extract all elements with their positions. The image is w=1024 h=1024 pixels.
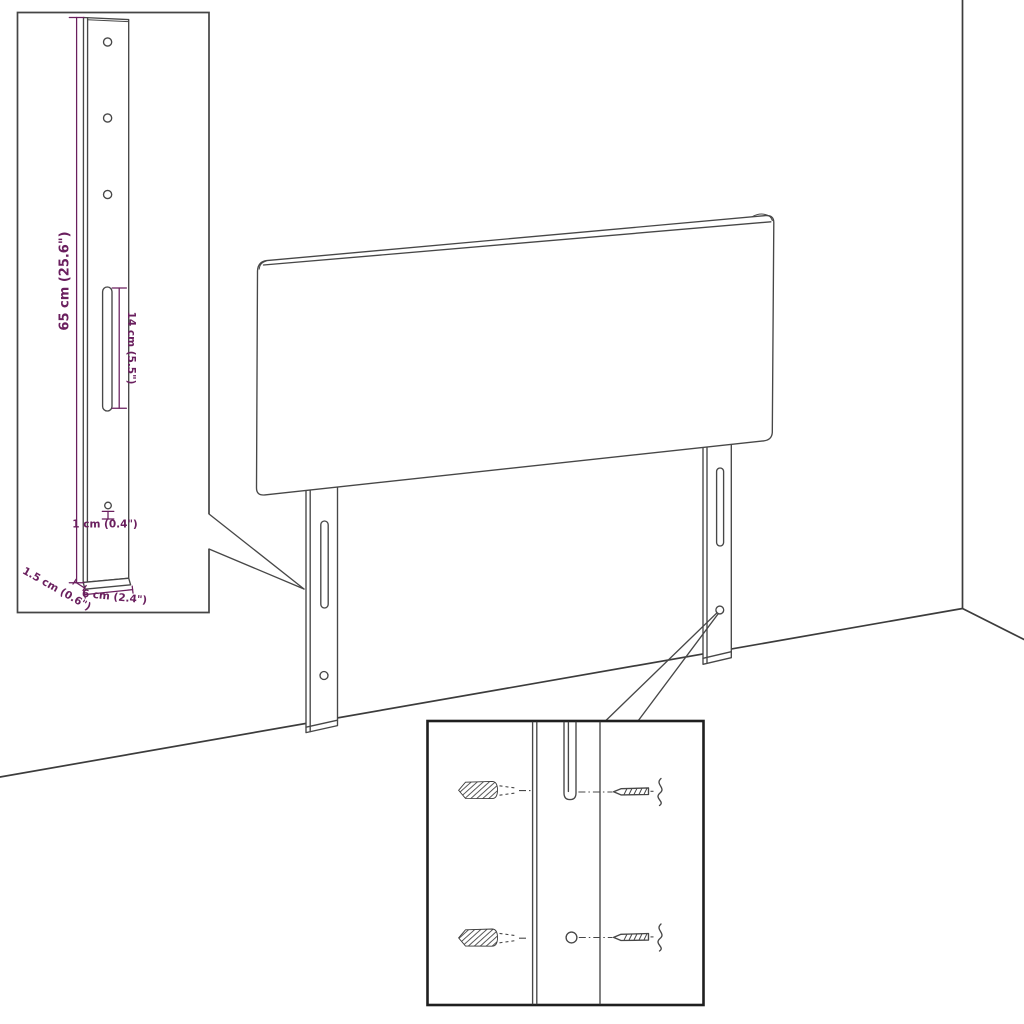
bracket-hole-1 [104, 38, 112, 46]
bracket-slot [103, 287, 112, 411]
product-dimension-diagram: 65 cm (25.6") 14 cm (5.5") 1 cm (0.4") 6… [0, 0, 1024, 1024]
dimension-65cm: 65 cm (25.6") [58, 18, 84, 583]
bracket-hole-2 [104, 114, 112, 122]
inset-bracket-dimensions: 65 cm (25.6") 14 cm (5.5") 1 cm (0.4") 6… [18, 13, 210, 614]
bracket-hole-3 [104, 190, 112, 198]
bracket-drawing [83, 18, 130, 590]
figure-canvas: 65 cm (25.6") 14 cm (5.5") 1 cm (0.4") 6… [0, 0, 1024, 1024]
headboard-leg-left [306, 476, 338, 733]
leg-left-slot [321, 521, 328, 608]
bracket-small-hole [105, 502, 112, 509]
inset-mounting-detail [428, 721, 704, 1005]
dimension-14cm-label: 14 cm (5.5") [125, 312, 137, 385]
headboard-panel [256, 214, 773, 495]
floor-wall-line-right [963, 609, 1024, 640]
dimension-1cm-label: 1 cm (0.4") [72, 519, 137, 531]
callout-lines-mounting-detail [605, 613, 718, 721]
dimension-65cm-label: 65 cm (25.6") [58, 231, 73, 330]
headboard-leg-right [703, 436, 731, 664]
leg-left-hole [320, 672, 328, 680]
leg-right-slot [717, 468, 724, 546]
callout-lines-bracket-detail [209, 514, 304, 589]
inset-mounting-border [428, 721, 704, 1005]
